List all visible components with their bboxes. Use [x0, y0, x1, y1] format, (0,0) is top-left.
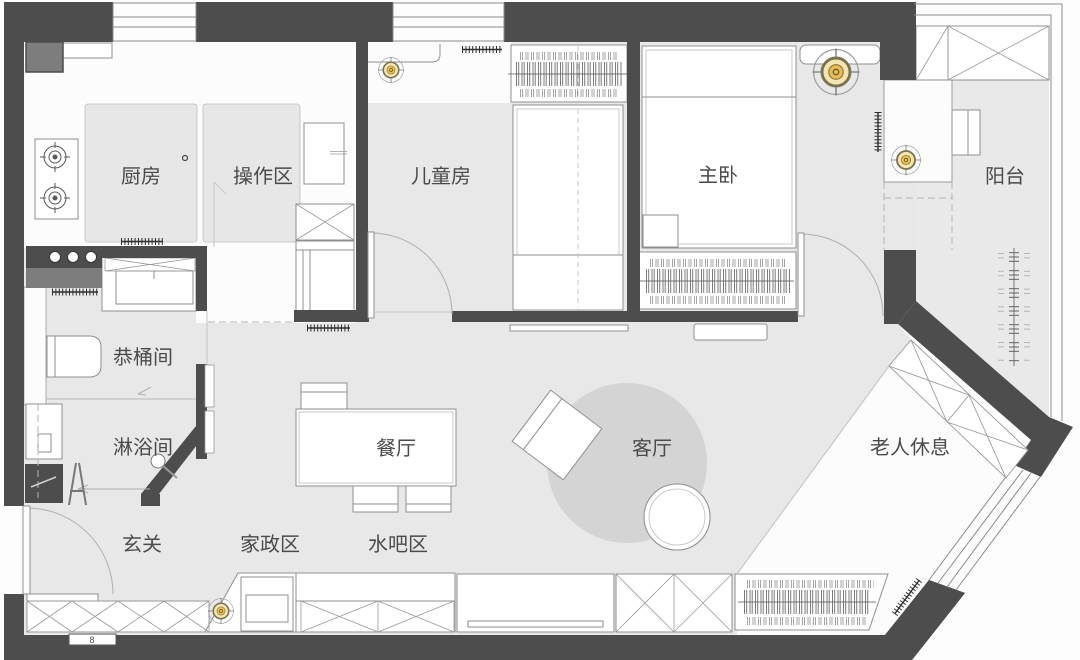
- svg-text:8: 8: [89, 635, 94, 645]
